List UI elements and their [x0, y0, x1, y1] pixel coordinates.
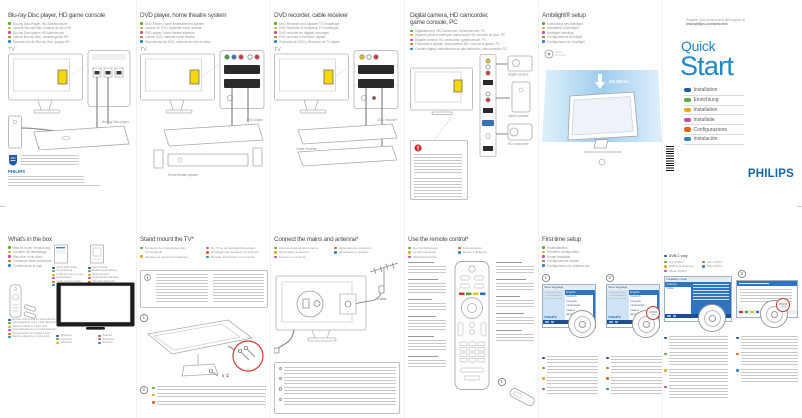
panel-remote-control: Use the remote control* Die Fernbedienun… [408, 236, 536, 416]
translation: Lettore DVD, sistema home theatre [140, 35, 266, 39]
device-label: HD camcorder [508, 142, 529, 146]
flag-de-icon [410, 30, 413, 32]
mode-option: Cable [665, 287, 691, 292]
key-hint [673, 315, 677, 316]
translation: Was ist in der Verpackung [8, 246, 134, 250]
cover-title-start: Start [680, 51, 733, 82]
translation: Digitalkamera, HD-Camcorder, Spielekonso… [410, 29, 536, 33]
fine-print [547, 356, 598, 364]
fold-line [270, 0, 271, 418]
flag-fr-icon [684, 108, 691, 112]
flag-it-icon [702, 261, 705, 263]
flag-de-icon [88, 270, 91, 272]
fine-print [414, 178, 462, 198]
translation: Cámara digital, videocámara de alta defi… [410, 47, 536, 51]
panel-title: Blu-ray Disc player, HD game console [8, 12, 134, 19]
fold-line [136, 0, 137, 418]
flag-fr-icon [408, 251, 411, 253]
fold-line [662, 0, 663, 418]
translation: Montaje del televisor en el soporte [206, 255, 268, 259]
fine-print [496, 296, 520, 298]
callout [496, 262, 536, 274]
translation-list: Nur DVB-C DVB-C uniquement Alleen DVB-C [664, 260, 698, 273]
caution-note-box [410, 140, 468, 200]
panel-camera-pc: Digital camera, HD camcorder, game conso… [410, 12, 536, 204]
flag-fr-icon [88, 274, 91, 276]
step-number: 2 [140, 386, 148, 394]
panel-title: Digital camera, HD camcorder, [410, 12, 536, 19]
quick-start-guide-icon [54, 244, 68, 264]
translation: Sólo DVB-C [702, 264, 732, 268]
translation-list: DVD-Player, Home Entertainment-System Le… [140, 22, 266, 44]
step-number: 1 [498, 378, 506, 386]
translation: Digitale camera, HD-camcorder, gameconso… [410, 38, 536, 42]
fine-print [547, 387, 598, 395]
connector-panel-diagram [354, 51, 398, 109]
translation: Montaggio del televisore sul supporto [206, 250, 268, 254]
flag-en-icon [664, 337, 667, 339]
device-label: Digital camera [508, 73, 529, 77]
flag-nl-icon [88, 277, 91, 279]
translation: Nur DVB-C [664, 260, 698, 264]
translation: Montage du support du téléviseur [140, 255, 202, 259]
flag-nl-icon [274, 256, 277, 258]
callout [496, 313, 536, 325]
flag-fr-icon [56, 342, 59, 344]
flag-it-icon [152, 401, 155, 403]
fine-print [611, 366, 662, 374]
flag-es-icon [52, 284, 55, 286]
translation: Configuración por primera vez [542, 264, 662, 268]
callout [408, 262, 448, 274]
remote-control-diagram [452, 260, 492, 392]
screen-help-pane: PHILIPS [543, 290, 565, 320]
flag-de-icon [664, 353, 667, 355]
translation: Fotocamera digitale, videocamera HD, con… [410, 42, 536, 46]
antenna-socket [340, 294, 356, 314]
flag-de-icon [274, 22, 277, 24]
flag-fr-icon [542, 251, 545, 253]
bullet-icon [279, 367, 283, 371]
dvd-connection-diagram: DVD player Home theatre system [140, 50, 266, 178]
fine-print [408, 340, 446, 351]
publisher-imprint: PHILIPS [8, 154, 128, 188]
item-label: Televisor [98, 341, 134, 344]
flag-en-icon [684, 88, 691, 92]
callout [408, 336, 448, 351]
fine-print [611, 377, 662, 385]
fine-print [547, 366, 598, 374]
flag-it-icon [206, 251, 209, 253]
language-row: Einrichtung [684, 96, 744, 106]
flag-fr-icon [664, 265, 667, 267]
fine-print [669, 385, 728, 399]
flag-it-icon [542, 260, 545, 262]
panel-bluray: Blu-ray Disc player, HD game console Blu… [8, 12, 134, 204]
tv-rear-diagram [9, 54, 83, 113]
translation-list: Die Fernbedienung La télécommande Afstan… [408, 246, 454, 259]
flag-it-icon [606, 377, 609, 379]
fine-print [408, 336, 434, 338]
flag-it-icon [334, 247, 337, 249]
flag-fr-icon [8, 326, 11, 328]
flag-es-icon [140, 40, 143, 42]
connector-panel-diagram [88, 51, 130, 107]
translation: Lettore Blu-ray Disc, console giochi HD [8, 35, 134, 39]
translation: Netsnoer en antenne [274, 255, 330, 259]
translation: DVD-recorder en digitale ontvanger [274, 31, 400, 35]
flag-nl-icon [664, 270, 667, 272]
translation-list: Erstinstallation Première configuration … [542, 246, 662, 268]
flag-de-icon [274, 247, 277, 249]
fine-print [21, 155, 79, 165]
translation: DVD Recorder et récepteur TV numérique [274, 26, 400, 30]
crop-mark [797, 206, 802, 207]
flag-es-icon [702, 265, 705, 267]
flag-es-icon [334, 251, 337, 253]
translation: Alimentazione e antenna [334, 246, 394, 250]
screen-brand: PHILIPS [609, 315, 621, 319]
panel-stand-mount: Stand mount the TV* Montieren des Standf… [140, 236, 268, 416]
panel-title: game console, PC [410, 19, 536, 26]
flag-nl-icon [410, 39, 413, 41]
flag-en-icon [52, 267, 55, 269]
recorder-connection-diagram: DVD recorder Cable receiver [274, 50, 400, 178]
device-label: DVD recorder [378, 118, 398, 122]
tv-rear-diagram [275, 54, 349, 113]
flag-it-icon [542, 36, 545, 38]
translation: Wat zit er in de doos [8, 255, 134, 259]
key-hint [551, 321, 555, 322]
translation: DVD-Recorder und digitaler TV-Empfänger [274, 22, 400, 26]
fine-print [496, 266, 534, 274]
fine-print [739, 283, 769, 284]
translation-list: Blu-ray Disc-Player, HD-Spielekonsole Le… [8, 22, 134, 44]
translation: Reproductor de Blu-ray Disc, juegos HD [8, 40, 134, 44]
fine-print-list [152, 386, 266, 408]
translation-list: Digitalkamera, HD-Camcorder, Spielekonso… [410, 29, 536, 51]
red-key-hint [739, 311, 743, 312]
tv-front-diagram [568, 92, 638, 152]
screen-help-pane: PHILIPS [607, 290, 629, 320]
callout [408, 316, 448, 331]
flag-fr-icon [8, 251, 11, 253]
translation: DVD recorder e ricevitore digitale [274, 35, 400, 39]
translation: Eerste installatie [542, 255, 662, 259]
fine-print [669, 336, 728, 350]
translation: Stromversorgung und Antenne [274, 246, 330, 250]
key-hint [545, 321, 549, 322]
fine-print [408, 360, 446, 368]
philips-wordmark: PHILIPS [748, 168, 794, 180]
flag-nl-icon [542, 388, 545, 390]
flag-it-icon [458, 247, 461, 249]
ok-button-detail-icon [776, 298, 790, 312]
flag-nl-icon [684, 118, 691, 122]
fine-print [496, 334, 534, 342]
flag-it-icon [8, 36, 11, 38]
panel-cover: Register your product and get support at… [664, 12, 798, 204]
fine-print [496, 313, 524, 315]
flag-it-icon [274, 36, 277, 38]
fine-print-list [664, 336, 728, 402]
flag-nl-icon [98, 335, 101, 337]
translation: Alimentación y antena [334, 250, 394, 254]
flag-nl-icon [206, 247, 209, 249]
flag-it-icon [736, 353, 739, 355]
flag-nl-icon [664, 386, 667, 388]
flag-de-icon [408, 247, 411, 249]
flag-en-icon [736, 337, 739, 339]
flag-fr-icon [8, 27, 11, 29]
power-cord [276, 330, 294, 350]
flag-it-icon [98, 338, 101, 340]
device-label: DVD player [247, 118, 264, 122]
fine-print [408, 266, 446, 274]
navigation-dial-icon [698, 304, 726, 332]
translation: Configuración de Ambilight [542, 40, 662, 44]
flag-de-icon [140, 247, 143, 249]
item-label: Mando a distancia y 2 pilas AAA [8, 335, 60, 338]
translation: Die Fernbedienung [408, 246, 454, 250]
callout [408, 299, 448, 311]
flag-de-icon [542, 246, 545, 248]
flag-en-icon [542, 357, 545, 359]
language-row: Instalación [684, 135, 744, 145]
flag-fr-icon [542, 27, 545, 29]
translation-list: Alimentazione e antenna Alimentación y a… [334, 246, 394, 255]
translation: Lecteur Blu-ray Disc, console de jeux HD [8, 26, 134, 30]
key-hint [615, 321, 619, 322]
flag-de-icon [8, 246, 11, 248]
flag-it-icon [8, 260, 11, 262]
translation: Montieren des Standfußes beim Fernsehger… [140, 246, 202, 254]
panel-title: Connect the mains and antenna* [274, 236, 400, 243]
translation: Configurazione iniziale [542, 259, 662, 263]
fine-print [408, 299, 432, 301]
fine-print [545, 292, 562, 300]
power-plug-icon [274, 348, 279, 353]
panel-ambilight: Ambilight® setup Einrichtung des Ambilig… [542, 12, 662, 204]
navigation-dial-icon [568, 310, 596, 338]
television-icon [56, 282, 136, 332]
mode-options: Antenna Cable [665, 282, 691, 314]
flag-nl-icon [542, 255, 545, 257]
translation: Appareil photo numérique, caméscope HD, … [410, 33, 536, 37]
flag-it-icon [8, 333, 11, 335]
philips-wordmark-small: PHILIPS [8, 169, 128, 174]
flag-es-icon [8, 264, 11, 266]
flag-es-icon [8, 40, 11, 42]
ambilight-diagram: 10-20cm [542, 46, 662, 176]
distance-label: 10-20cm [609, 79, 628, 85]
fold-line [538, 0, 539, 418]
television-labels-col2: Televisie Televisore Televisor [98, 334, 134, 345]
flag-it-icon [52, 281, 55, 283]
blue-key-hint [756, 311, 760, 312]
home-theatre-diagram [154, 148, 262, 168]
flag-fr-icon [410, 34, 413, 36]
quick-start-leaflet: Blu-ray Disc player, HD game console Blu… [0, 0, 802, 418]
user-manual-icon [90, 244, 104, 264]
translation-list: Il telecomando Mando a distancia [458, 246, 504, 255]
translation-list: DVD-Recorder und digitaler TV-Empfänger … [274, 22, 400, 44]
translation: La télécommande [408, 250, 454, 254]
fine-print [408, 262, 434, 264]
side-connector-strip [480, 55, 496, 157]
flag-de-icon [140, 22, 143, 24]
fine-print-list [606, 356, 662, 398]
stand-marker-icon [599, 159, 605, 165]
flag-fr-icon [52, 274, 55, 276]
device-label: Home theatre system [168, 173, 199, 177]
fine-print [408, 356, 438, 358]
flag-en-icon [56, 335, 59, 337]
flag-nl-icon [8, 31, 11, 33]
panel-title: DVD recorder, cable receiver [274, 12, 400, 19]
fine-print-list [542, 356, 598, 398]
bluray-connection-diagram: Blu-ray Disc player HD game console [8, 50, 132, 150]
flag-es-icon [98, 342, 101, 344]
flag-es-icon [410, 48, 413, 50]
flag-es-icon [8, 336, 11, 338]
fine-print [669, 369, 728, 383]
dvbc-block: DVB-C only Nur DVB-C DVB-C uniquement Al… [664, 254, 688, 258]
register-text: Register your product and get support at… [686, 18, 745, 26]
step-number: 1 [542, 274, 550, 282]
antenna-icon [370, 263, 398, 287]
key-hint [609, 321, 613, 322]
flag-en-icon [664, 255, 667, 257]
flag-es-icon [206, 256, 209, 258]
translation: DVD-speler, home theatre systeem [140, 31, 266, 35]
step-number: 2 [606, 274, 614, 282]
flag-de-icon [56, 338, 59, 340]
translation-list: Montieren des Standfußes beim Fernsehger… [140, 246, 202, 259]
remote-insert-batteries-icon [504, 382, 538, 412]
callout [496, 330, 536, 342]
fine-print [284, 367, 396, 375]
fine-print [496, 262, 522, 264]
callouts-left [408, 262, 448, 373]
screw-detail-circle [233, 341, 263, 371]
translation: Mando a distancia [458, 250, 504, 254]
flag-nl-icon [274, 31, 277, 33]
mains-antenna-diagram: Cable [274, 260, 400, 358]
fine-print [741, 336, 798, 350]
translation-list: De TV op de standaard bevestigen Montagg… [206, 246, 268, 259]
fine-print [408, 303, 446, 311]
translation: Erstinstallation [542, 246, 662, 250]
flag-fr-icon [152, 394, 155, 396]
translation-list: Einrichtung des Ambilight Installation d… [542, 22, 662, 44]
flag-es-icon [736, 369, 739, 371]
flag-nl-icon [52, 277, 55, 279]
fine-print [8, 185, 100, 188]
flag-es-icon [606, 388, 609, 390]
bullet-icon [279, 398, 283, 402]
translation: Configurazione Ambilight [542, 35, 662, 39]
flag-de-icon [8, 22, 11, 24]
language-row: Installation [684, 86, 744, 96]
callout [496, 296, 536, 308]
callouts-right [496, 262, 536, 347]
fine-print [213, 274, 265, 304]
panel-dvd-player: DVD player, home theatre system DVD-Play… [140, 12, 266, 204]
flag-de-icon [542, 367, 545, 369]
panel-title: Ambilight® setup [542, 12, 662, 19]
fine-print [157, 386, 266, 391]
flag-fr-icon [274, 251, 277, 253]
fine-print [496, 283, 534, 291]
screen-brand: PHILIPS [545, 315, 557, 319]
flag-de-icon [664, 261, 667, 263]
register-url: www.philips.com/welcome [686, 22, 745, 26]
flag-it-icon [140, 36, 143, 38]
green-key-hint [745, 311, 749, 312]
warning-icon [414, 144, 422, 152]
digital-camera-diagram [508, 56, 532, 71]
remote-labels: Remote control and 2 x AAA batteries Fer… [8, 318, 60, 339]
translation: De TV op de standaard bevestigen [206, 246, 268, 250]
fine-print [547, 377, 598, 385]
screws-label: x 4 [222, 374, 229, 380]
language-row: Configurazione [684, 125, 744, 135]
translation: Contenuto della confezione [8, 259, 134, 263]
callout [408, 356, 448, 368]
fine-print [741, 352, 798, 366]
fine-print [414, 154, 462, 174]
bullet-icon [279, 387, 283, 391]
step-number: 1 [140, 314, 148, 322]
info-icon [144, 274, 151, 281]
flag-it-icon [684, 127, 691, 131]
philips-shield-icon [8, 154, 18, 166]
panel-dvbc-setup: DVB-C only Nur DVB-C DVB-C uniquement Al… [664, 236, 798, 416]
language-row: Installatie [684, 115, 744, 125]
flag-nl-icon [8, 255, 11, 257]
flag-de-icon [152, 387, 155, 389]
crop-mark [0, 206, 5, 207]
bullet-icon [279, 377, 283, 381]
panel-title: Stand mount the TV* [140, 236, 268, 243]
flag-es-icon [542, 40, 545, 42]
fine-print [284, 387, 396, 395]
stand-mount-diagram: x 4 [140, 312, 268, 382]
dvd-player-diagram [164, 124, 263, 146]
fine-print [157, 393, 266, 398]
flag-de-icon [52, 270, 55, 272]
translation: Il telecomando [458, 246, 504, 250]
fine-print [8, 176, 84, 183]
panel-first-time-setup: First time setup Erstinstallation Premiè… [542, 236, 662, 416]
yellow-key-hint [750, 311, 754, 312]
fine-print [496, 317, 534, 325]
flag-es-icon [458, 251, 461, 253]
callout [408, 279, 448, 294]
translation: Reproductor de DVD, sistema de cine en c… [140, 40, 266, 44]
flag-es-icon [274, 40, 277, 42]
fine-print [496, 279, 526, 281]
flag-en-icon [606, 357, 609, 359]
game-console-diagram [9, 116, 22, 148]
flag-nl-icon [140, 31, 143, 33]
connector-panel-diagram [220, 51, 264, 109]
flag-it-icon [410, 43, 413, 45]
translation-list: Stromversorgung und Antenne Alimentation… [274, 246, 330, 259]
flag-de-icon [684, 98, 691, 102]
fine-print [496, 330, 522, 332]
